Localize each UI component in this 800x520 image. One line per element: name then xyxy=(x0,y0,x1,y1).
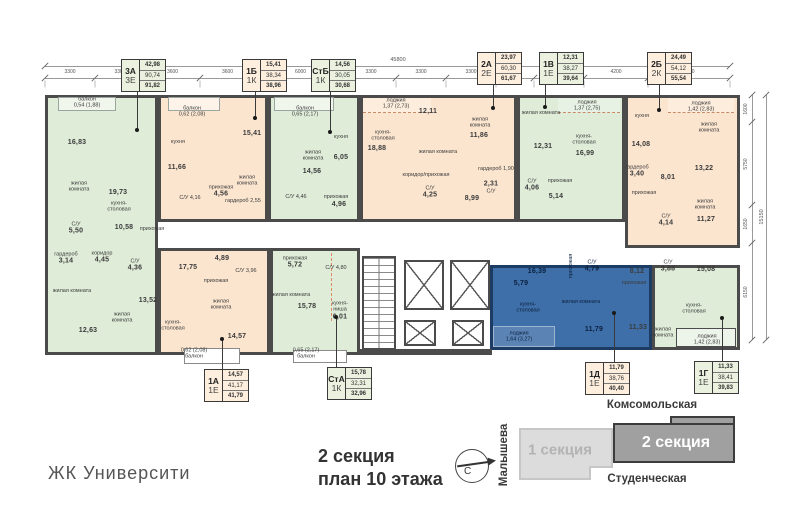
room-label-text: 14,57 xyxy=(228,333,247,341)
apartment-tag-1g[interactable]: 1Г1Е11,3338,4139,83 xyxy=(694,361,739,394)
plan-title-line1: 2 секция xyxy=(318,445,443,468)
room-label-3a: 10,58 xyxy=(115,224,134,232)
room-label-stb: жилаякомната xyxy=(303,150,324,163)
room-label-text: комната xyxy=(69,187,90,193)
room-label-1b: гардероб 2,55 xyxy=(225,198,261,204)
room-label-2b: лоджия1,42 (2,83) xyxy=(688,101,715,114)
room-label-text: 18,88 xyxy=(368,145,387,153)
room-label-1v: жилая комната xyxy=(522,110,560,116)
room-label-1b: жилаякомната xyxy=(237,175,258,188)
room-label-text: 8,12 xyxy=(630,268,644,276)
room-label-stb: 14,56 xyxy=(303,168,322,176)
tag-type-cell: 1Г1Е xyxy=(695,362,713,393)
tag-leader-line xyxy=(137,91,138,130)
tag-leader-line xyxy=(255,91,256,118)
dimension-extension xyxy=(396,81,397,88)
dimension-extension xyxy=(95,81,96,88)
room-label-1a: 14,57 xyxy=(228,333,247,341)
apartment-format: 1К xyxy=(247,76,257,85)
compass-north-letter: С xyxy=(464,466,471,477)
room-label-text: 4,96 xyxy=(332,201,346,209)
elevator-shaft-2 xyxy=(450,260,490,310)
room-label-1v: 12,31 xyxy=(534,143,553,151)
tag-leader-dot xyxy=(253,116,257,120)
tag-leader-line xyxy=(336,317,337,367)
dimension-segment-label: 3300 xyxy=(415,69,426,75)
room-label-2a: С/У4,25 xyxy=(423,186,437,201)
living-area-value: 42,98 xyxy=(140,60,165,70)
tag-leader-dot xyxy=(657,108,661,112)
room-label-1d: С/У4,79 xyxy=(585,260,599,275)
room-label-text: 19,73 xyxy=(109,189,128,197)
dimension-segment-label: 3300 xyxy=(365,69,376,75)
room-label-stb: прихожая xyxy=(324,194,349,200)
tag-areas-cell: 23,9760,3061,67 xyxy=(496,53,521,84)
room-label-stb: кухня xyxy=(334,134,348,140)
room-label-1g: 15,08 xyxy=(697,266,716,274)
room-label-1v: прихожая xyxy=(548,178,573,184)
total-area-value: 61,67 xyxy=(496,74,521,84)
dimension-top-total-label: 45800 xyxy=(390,57,405,63)
living-area-value: 14,56 xyxy=(330,60,355,70)
room-label-3a: жилаякомната xyxy=(69,181,90,194)
room-label-text: 3,88 xyxy=(661,266,675,274)
room-label-text: 1,42 (2,83) xyxy=(694,340,721,346)
tag-leader-line xyxy=(614,313,615,362)
room-label-2b: гардероб3,40 xyxy=(625,165,648,180)
room-label-sta: прихожая5,72 xyxy=(283,256,308,271)
tag-leader-line xyxy=(659,84,660,110)
tag-type-cell: 1В1Е xyxy=(540,53,558,84)
dimension-line-right-segments xyxy=(752,95,753,340)
room-label-text: 0,54 (1,88) xyxy=(74,103,101,109)
room-label-3a: жилая комната xyxy=(53,288,91,294)
room-label-1d: 5,79 xyxy=(514,280,528,288)
tag-areas-cell: 11,7938,7640,40 xyxy=(604,363,629,394)
room-label-text: комната xyxy=(112,318,133,324)
street-malysheva: Малышева xyxy=(498,424,510,487)
tag-leader-line xyxy=(722,318,723,361)
room-label-stb: 4,96 xyxy=(332,201,346,209)
living-area-value: 15,41 xyxy=(261,60,286,70)
tag-areas-cell: 12,3138,2739,64 xyxy=(558,53,583,84)
room-label-text: 15,08 xyxy=(697,266,716,274)
room-label-text: 11,66 xyxy=(168,164,186,172)
area-value: 32,31 xyxy=(346,378,371,390)
tag-type-cell: 1Д1Е xyxy=(586,363,604,394)
room-label-1d: жилая комната xyxy=(562,299,600,305)
apartment-area-2a[interactable] xyxy=(360,95,517,222)
room-label-2a: коридор/прихожая xyxy=(402,172,449,178)
room-label-text: кухня xyxy=(334,134,348,140)
room-label-text: комната xyxy=(653,333,674,339)
siteplan-section2-label: 2 секция xyxy=(642,434,710,452)
room-label-text: комната xyxy=(303,156,324,162)
dimension-right-total-label: 15150 xyxy=(759,209,765,224)
room-label-text: 17,75 xyxy=(179,264,198,272)
room-label-2a: 18,88 xyxy=(368,145,387,153)
room-label-text: 4,06 xyxy=(525,185,539,193)
room-label-1b: балкон0,62 (2,08) xyxy=(179,106,206,119)
room-label-text: столовая xyxy=(107,207,130,213)
tag-areas-cell: 14,5630,0530,68 xyxy=(330,60,355,91)
total-area-value: 38,96 xyxy=(261,81,286,91)
room-label-text: 16,83 xyxy=(68,139,87,147)
room-label-text: кухня xyxy=(171,139,185,145)
tag-leader-line xyxy=(545,84,546,107)
tag-leader-dot xyxy=(491,106,495,110)
room-label-text: 3,40 xyxy=(625,171,648,179)
room-label-1v: кухня-столовая xyxy=(572,134,595,147)
area-value: 90,74 xyxy=(140,70,165,82)
dimension-tick xyxy=(762,336,769,343)
dimension-tick xyxy=(726,62,733,69)
room-label-3a: С/У5,50 xyxy=(69,222,83,237)
siteplan-section1-step xyxy=(519,466,591,480)
room-label-text: прихожая xyxy=(568,254,574,279)
room-label-2b: 14,08 xyxy=(632,141,651,149)
room-label-text: жилая комната xyxy=(562,299,600,305)
room-label-text: столовая xyxy=(161,326,184,332)
room-label-text: 11,33 xyxy=(629,324,647,332)
area-value: 41,17 xyxy=(223,380,248,392)
tag-type-cell: 2А2Е xyxy=(478,53,496,84)
total-area-value: 91,82 xyxy=(140,81,165,91)
room-label-1b: С/У 4,16 xyxy=(179,195,200,201)
living-area-value: 11,33 xyxy=(713,362,738,372)
dimension-segment-label: 3600 xyxy=(167,69,178,75)
room-label-text: столовая xyxy=(572,140,595,146)
living-area-value: 15,78 xyxy=(346,368,371,378)
room-label-3a: 12,63 xyxy=(79,327,98,335)
room-label-text: 8,99 xyxy=(465,195,479,203)
room-label-1v: 16,99 xyxy=(576,150,595,158)
room-label-text: 14,56 xyxy=(303,168,322,176)
apartment-format: 3Е xyxy=(125,76,135,85)
dimension-segment-label: 1600 xyxy=(743,103,749,114)
apartment-format: 2К xyxy=(652,69,662,78)
room-label-3a: С/У4,36 xyxy=(128,259,142,274)
service-shaft-1 xyxy=(404,320,436,346)
room-label-1d: прихожая xyxy=(568,254,574,279)
dimension-segment-label: 6150 xyxy=(743,286,749,297)
room-label-text: С/У 4,16 xyxy=(179,195,200,201)
room-label-stb: С/У 4,46 xyxy=(285,194,306,200)
living-area-value: 12,31 xyxy=(558,53,583,63)
room-label-text: жилая комната xyxy=(272,292,310,298)
room-label-2b: С/У4,14 xyxy=(659,214,673,229)
room-label-2b: жилаякомната xyxy=(695,199,716,212)
apartment-tag-2b[interactable]: 2Б2К24,4954,1255,54 xyxy=(647,52,692,85)
apartment-tag-1b[interactable]: 1Б1К15,4138,3438,96 xyxy=(242,59,287,92)
entrance-wall xyxy=(358,349,492,355)
tag-leader-line xyxy=(222,339,223,369)
room-label-1g: 8,12 xyxy=(630,268,644,276)
room-label-3a: 16,83 xyxy=(68,139,87,147)
tag-type-cell: 1Б1К xyxy=(243,60,261,91)
room-label-1g: 11,33 xyxy=(629,324,647,332)
room-label-text: 0,62 (2,08) xyxy=(179,112,206,118)
total-area-value: 55,54 xyxy=(666,74,691,84)
room-label-1d: кухня-столовая xyxy=(516,302,539,315)
room-label-1v: 5,14 xyxy=(549,193,563,201)
plan-title: 2 секция план 10 этажа xyxy=(318,445,443,490)
area-value: 38,34 xyxy=(261,70,286,82)
street-komsomolskaya: Комсомольская xyxy=(607,399,697,411)
room-label-2b: 13,22 xyxy=(695,165,714,173)
dimension-extension xyxy=(200,81,201,88)
room-label-text: 4,79 xyxy=(585,266,599,274)
room-label-1g: кухня-столовая xyxy=(682,303,705,316)
room-label-text: 10,58 xyxy=(115,224,134,232)
room-label-stb: балкон0,65 (2,17) xyxy=(292,106,319,119)
room-label-text: прихожая xyxy=(622,280,647,286)
tag-leader-dot xyxy=(720,316,724,320)
room-label-2a: 8,99 xyxy=(465,195,479,203)
room-label-text: гардероб 1,90 xyxy=(478,166,514,172)
room-label-1a: 17,75 xyxy=(179,264,198,272)
room-label-text: столовая xyxy=(516,308,539,314)
room-label-1v: лоджия1,37 (2,75) xyxy=(574,100,601,113)
living-area-value: 24,49 xyxy=(666,53,691,63)
room-label-text: 11,27 xyxy=(697,216,715,224)
room-label-1a: 4,89 xyxy=(215,255,229,263)
room-label-text: 16,39 xyxy=(528,268,547,276)
room-label-sta: 0,65 (2,17)балкон xyxy=(293,348,320,361)
room-label-2a: жилаякомната xyxy=(470,117,491,130)
apartment-tag-stb[interactable]: СтБ1К14,5630,0530,68 xyxy=(311,59,356,92)
room-label-text: 11,86 xyxy=(470,132,488,140)
tag-type-cell: 2Б2К xyxy=(648,53,666,84)
room-label-1b: кухня xyxy=(171,139,185,145)
apartment-format: 1Е xyxy=(543,69,553,78)
room-label-sta: С/У 4,80 xyxy=(325,265,346,271)
room-label-text: 12,11 xyxy=(419,108,437,116)
total-area-value: 32,96 xyxy=(346,389,371,399)
room-label-text: 16,99 xyxy=(576,150,595,158)
floorplan-page: 45800 15150 ЖК Университи 2 секция план … xyxy=(0,0,800,520)
room-label-text: комната xyxy=(211,305,232,311)
total-area-value: 40,40 xyxy=(604,384,629,394)
plan-title-line2: план 10 этажа xyxy=(318,468,443,491)
room-label-text: 1,37 (2,73) xyxy=(383,104,410,110)
living-area-value: 11,79 xyxy=(604,363,629,373)
room-label-3a: кухня-столовая xyxy=(107,201,130,214)
tag-areas-cell: 15,4138,3438,96 xyxy=(261,60,286,91)
dimension-extension xyxy=(534,81,535,88)
room-label-2a: 12,11 xyxy=(419,108,437,116)
room-label-1v: С/У4,06 xyxy=(525,179,539,194)
room-label-2b: 8,01 xyxy=(661,174,675,182)
living-area-value: 14,57 xyxy=(223,370,248,380)
room-label-stb: 6,05 xyxy=(334,154,348,162)
room-label-text: балкон xyxy=(293,354,320,360)
dimension-segment-label: 1650 xyxy=(743,218,749,229)
room-label-text: 4,25 xyxy=(423,192,437,200)
room-label-text: 6,05 xyxy=(334,154,348,162)
tag-type-cell: 1А1Е xyxy=(205,370,223,401)
dimension-line-right-total xyxy=(766,95,767,340)
room-label-text: 5,50 xyxy=(69,228,83,236)
dimension-segment-label: 4200 xyxy=(610,69,621,75)
dimension-extension xyxy=(45,81,46,88)
apartment-format: 1К xyxy=(316,76,326,85)
room-label-text: 2,31 xyxy=(484,181,498,189)
apartment-format: 1К xyxy=(332,384,342,393)
room-label-2a: лоджия1,37 (2,73) xyxy=(383,98,410,111)
apartment-tag-2a[interactable]: 2А2Е23,9760,3061,67 xyxy=(477,52,522,85)
room-label-text: 4,45 xyxy=(92,257,113,265)
total-area-value: 41,79 xyxy=(223,391,248,401)
room-label-1a: 0,62 (2,08)балкон xyxy=(181,348,208,361)
room-label-text: комната xyxy=(470,123,491,129)
room-label-text: 4,14 xyxy=(659,220,673,228)
tag-leader-line xyxy=(330,91,331,132)
dimension-segment-label: 5750 xyxy=(743,158,749,169)
room-label-text: прихожая xyxy=(324,194,349,200)
room-label-text: комната xyxy=(695,205,716,211)
tag-type-cell: СтА1К xyxy=(328,368,346,399)
room-label-text: 1,64 (3,27) xyxy=(506,337,533,343)
room-label-text: С/У xyxy=(484,189,498,195)
total-area-value: 39,64 xyxy=(558,74,583,84)
room-label-1d: 16,39 xyxy=(528,268,547,276)
tag-areas-cell: 14,5741,1741,79 xyxy=(223,370,248,401)
room-label-1a: С/У 3,96 xyxy=(235,268,256,274)
room-label-text: жилая комната xyxy=(522,110,560,116)
room-label-text: столовая xyxy=(682,309,705,315)
tag-areas-cell: 42,9890,7491,82 xyxy=(140,60,165,91)
apartment-tag-sta[interactable]: СтА1К15,7832,3132,96 xyxy=(327,367,372,400)
tag-leader-dot xyxy=(220,337,224,341)
room-label-2a: кухня-столовая xyxy=(371,130,394,143)
room-label-text: столовая xyxy=(371,136,394,142)
room-label-2a: 2,31С/У xyxy=(484,181,498,196)
total-area-value: 30,68 xyxy=(330,81,355,91)
room-label-text: 4,89 xyxy=(215,255,229,263)
tag-areas-cell: 24,4954,1255,54 xyxy=(666,53,691,84)
apartment-format: 1Е xyxy=(698,378,708,387)
area-value: 60,30 xyxy=(496,63,521,75)
room-label-text: прихожая xyxy=(204,278,229,284)
room-label-text: 3,14 xyxy=(54,258,77,266)
dimension-tick xyxy=(748,336,755,343)
room-label-3a: коридор4,45 xyxy=(92,251,113,266)
room-label-text: 13,52 xyxy=(139,297,158,305)
room-label-text: С/У 4,46 xyxy=(285,194,306,200)
dimension-segment-label: 3300 xyxy=(465,69,476,75)
dimension-segment-label: 6000 xyxy=(295,69,306,75)
living-area-value: 23,97 xyxy=(496,53,521,63)
room-label-3a: прихожая xyxy=(140,226,165,232)
dimension-extension xyxy=(446,81,447,88)
siteplan-section1-label: 1 секция xyxy=(528,442,592,459)
room-label-text: 1,42 (2,83) xyxy=(688,107,715,113)
tag-leader-dot xyxy=(543,105,547,109)
room-label-text: 15,41 xyxy=(243,130,262,138)
room-label-1a: жилаякомната xyxy=(211,299,232,312)
dimension-segment-label: 3600 xyxy=(222,69,233,75)
street-studencheskaya: Студенческая xyxy=(607,473,686,485)
room-label-text: 15,78 xyxy=(298,303,317,311)
room-label-text: 12,31 xyxy=(534,143,553,151)
room-label-sta: 15,78 xyxy=(298,303,317,311)
area-value: 54,12 xyxy=(666,63,691,75)
room-label-text: жилая комната xyxy=(53,288,91,294)
room-label-1d: лоджия1,64 (3,27) xyxy=(506,331,533,344)
room-label-text: ниша xyxy=(332,307,348,313)
tag-leader-dot xyxy=(612,311,616,315)
room-label-text: прихожая xyxy=(548,178,573,184)
room-label-text: 12,63 xyxy=(79,327,98,335)
tag-type-cell: 3А3Е xyxy=(122,60,140,91)
room-label-text: комната xyxy=(237,181,258,187)
room-label-text: кухня xyxy=(635,113,649,119)
room-label-1a: прихожая xyxy=(204,278,229,284)
apartment-tag-3a[interactable]: 3А3Е42,9890,7491,82 xyxy=(121,59,166,92)
dimension-extension xyxy=(730,81,731,88)
dimension-segment-label: 3300 xyxy=(64,69,75,75)
room-label-3a: гардероб3,14 xyxy=(54,252,77,267)
room-label-2a: гардероб 1,90 xyxy=(478,166,514,172)
tag-leader-line xyxy=(493,84,494,108)
room-label-text: гардероб 2,55 xyxy=(225,198,261,204)
room-label-text: 0,65 (2,17) xyxy=(292,112,319,118)
apartment-format: 2Е xyxy=(481,69,491,78)
room-label-1g: лоджия1,42 (2,83) xyxy=(694,334,721,347)
room-label-3a: 13,52 xyxy=(139,297,158,305)
apartment-tag-1d[interactable]: 1Д1Е11,7938,7640,40 xyxy=(585,362,630,395)
room-label-1g: прихожая xyxy=(622,280,647,286)
room-label-text: коридор/прихожая xyxy=(402,172,449,178)
room-label-text: 14,08 xyxy=(632,141,651,149)
room-label-text: 1,37 (2,75) xyxy=(574,106,601,112)
room-label-text: 5,14 xyxy=(549,193,563,201)
service-shaft-2 xyxy=(452,320,484,346)
room-label-2b: кухня xyxy=(635,113,649,119)
elevator-shaft-1 xyxy=(404,260,444,310)
room-label-3a: жилаякомната xyxy=(112,312,133,325)
room-label-1d: 11,79 xyxy=(585,326,603,334)
room-label-text: балкон xyxy=(181,354,208,360)
room-label-text: 4,36 xyxy=(128,265,142,273)
tag-type-cell: СтБ1К xyxy=(312,60,330,91)
room-label-text: 13,22 xyxy=(695,165,714,173)
room-label-text: 8,01 xyxy=(661,174,675,182)
room-label-2b: жилаякомната xyxy=(699,122,720,135)
room-label-text: жилая комната xyxy=(419,149,457,155)
room-label-2a: жилая комната xyxy=(419,149,457,155)
compass-arrow-head xyxy=(487,456,496,465)
apartment-format: 1Е xyxy=(208,386,218,395)
room-label-text: С/У 3,96 xyxy=(235,268,256,274)
area-value: 38,76 xyxy=(604,373,629,385)
room-label-1b: 15,41 xyxy=(243,130,262,138)
room-label-3a: балкон0,54 (1,88) xyxy=(74,97,101,110)
room-label-text: прихожая xyxy=(632,190,657,196)
room-label-sta: жилая комната xyxy=(272,292,310,298)
apartment-tag-1v[interactable]: 1В1Е12,3138,2739,64 xyxy=(539,52,584,85)
room-label-2b: прихожая xyxy=(632,190,657,196)
room-label-1b: 11,66 xyxy=(168,164,186,172)
room-label-3a: 19,73 xyxy=(109,189,128,197)
room-label-text: прихожая xyxy=(140,226,165,232)
tag-leader-dot xyxy=(328,130,332,134)
staircase xyxy=(362,256,396,350)
apartment-tag-1a[interactable]: 1А1Е14,5741,1741,79 xyxy=(204,369,249,402)
room-label-text: 11,79 xyxy=(585,326,603,334)
room-label-2b: 11,27 xyxy=(697,216,715,224)
